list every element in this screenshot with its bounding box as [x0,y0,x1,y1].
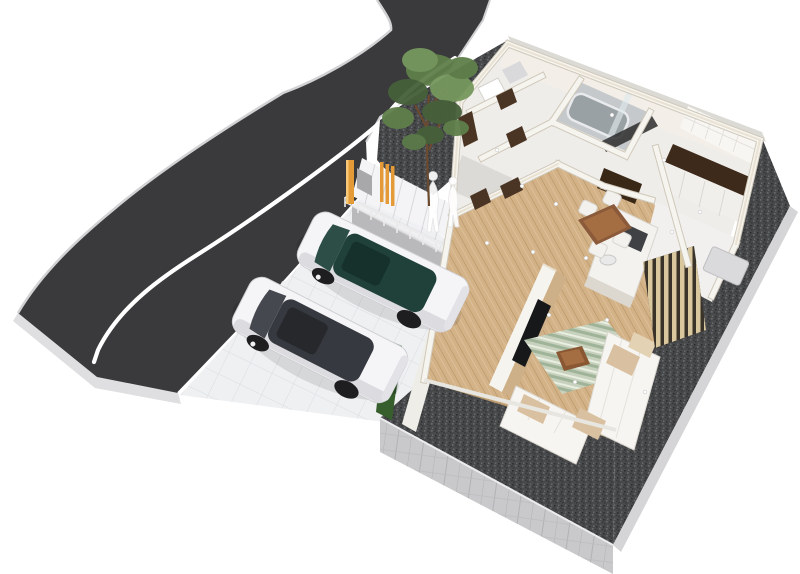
downlight [643,390,647,394]
downlight [605,318,609,322]
figure-head [429,172,438,181]
downlight [573,380,577,384]
downlight [662,158,666,162]
downlight [610,113,614,117]
downlight [698,210,702,214]
figure-head [449,177,457,185]
downlight [520,184,524,188]
render-canvas [0,0,800,574]
downlight [547,313,551,317]
downlight [670,230,674,234]
orange-gate-post-highlight [346,160,349,204]
downlight [495,148,499,152]
downlight [531,250,535,254]
downlight [485,241,489,245]
downlight [554,202,558,206]
downlight [584,256,588,260]
floorplan-3d-render [0,0,800,574]
orange-slat-screen [380,162,395,206]
